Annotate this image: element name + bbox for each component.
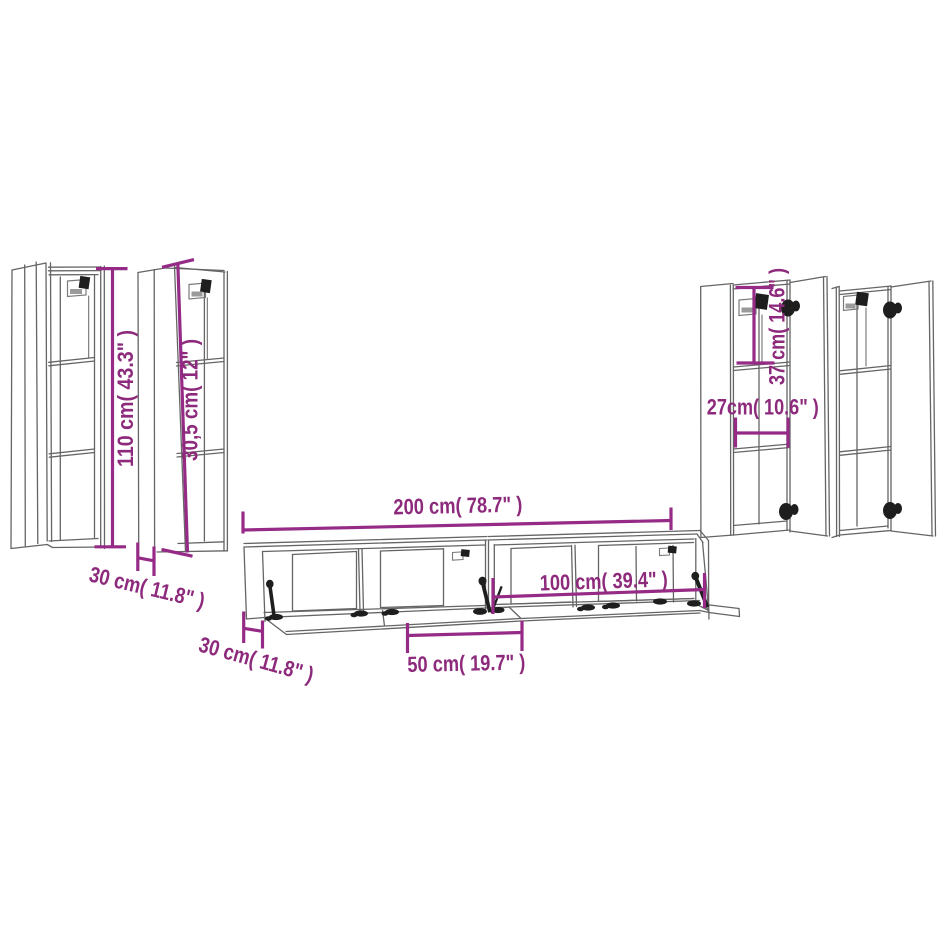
svg-text:30,5 cm( 12" ): 30,5 cm( 12" ) (178, 339, 203, 461)
svg-text:110 cm( 43.3" ): 110 cm( 43.3" ) (113, 330, 138, 467)
svg-text:37 cm( 14.6" ): 37 cm( 14.6" ) (765, 268, 790, 385)
svg-text:50 cm( 19.7" ): 50 cm( 19.7" ) (407, 650, 525, 677)
svg-text:27cm( 10.6" ): 27cm( 10.6" ) (707, 395, 819, 420)
svg-text:200 cm( 78.7" ): 200 cm( 78.7" ) (393, 492, 523, 520)
svg-text:100 cm( 39.4" ): 100 cm( 39.4" ) (539, 566, 668, 595)
